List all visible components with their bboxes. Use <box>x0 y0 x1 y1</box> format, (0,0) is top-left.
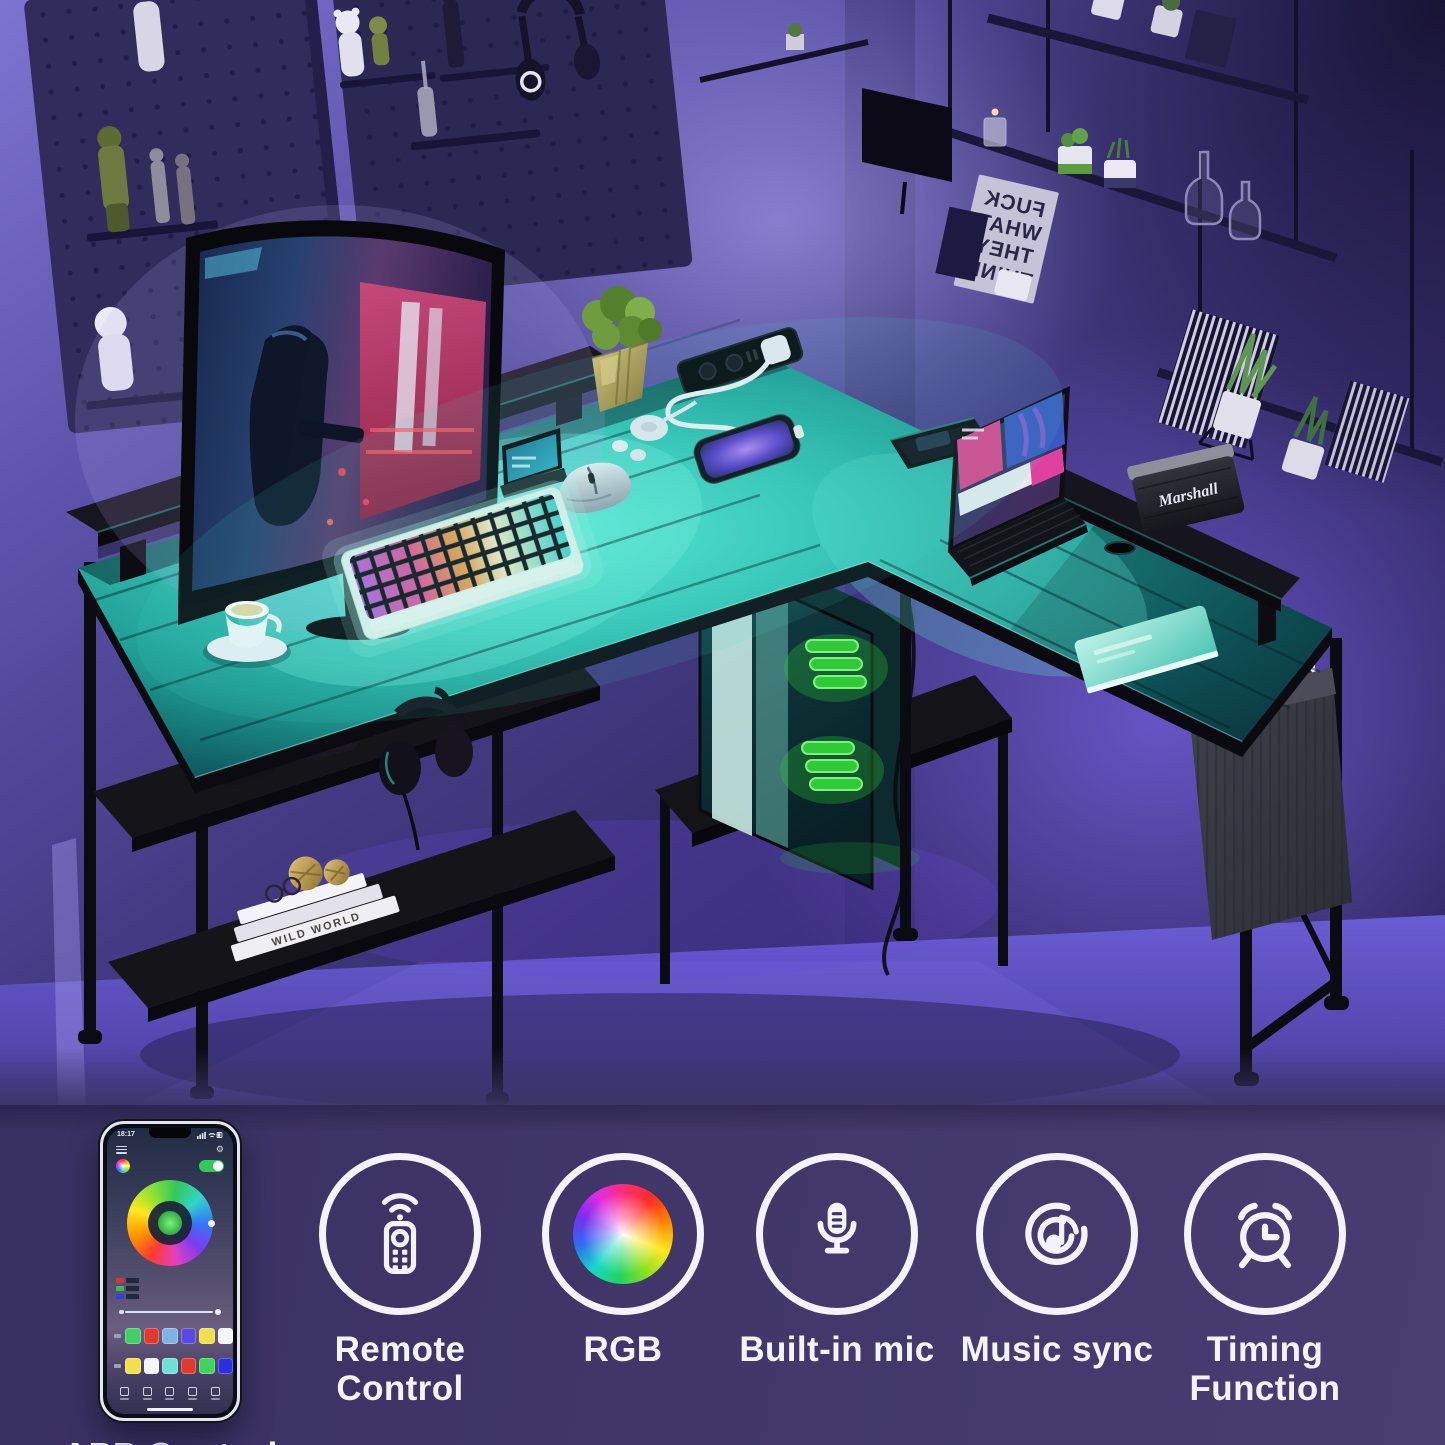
smartphone-app-icon: 18:17 ⚙ <box>100 1121 240 1421</box>
room-scene: FUCK WHAT THEY THINK <box>0 0 1445 1112</box>
color-swatch <box>125 1358 141 1374</box>
app-control-row <box>107 1159 233 1173</box>
feature-rgb: RGB <box>513 1153 733 1370</box>
feature-label: RGB <box>584 1331 663 1370</box>
alarm-clock-icon <box>1184 1153 1346 1315</box>
color-mode-icon <box>116 1159 130 1173</box>
feature-label: Music sync <box>961 1331 1154 1370</box>
status-icons <box>197 1131 223 1139</box>
swatch-row-2 <box>114 1358 233 1374</box>
feature-label: Remote Control <box>313 1331 488 1408</box>
grommet-hole <box>1105 542 1135 554</box>
rgb-value-chips <box>116 1278 139 1299</box>
color-swatch <box>125 1328 141 1344</box>
feature-timing-function: Timing Function <box>1135 1153 1395 1408</box>
feature-strip: 18:17 ⚙ <box>0 1105 1445 1445</box>
color-swatch <box>162 1358 178 1374</box>
color-swatch <box>218 1358 234 1374</box>
home-indicator <box>147 1408 193 1412</box>
microphone-icon <box>756 1153 918 1315</box>
color-swatch <box>181 1358 197 1374</box>
feature-music-sync: Music sync <box>947 1153 1167 1370</box>
product-image: FUCK WHAT THEY THINK <box>0 0 1445 1445</box>
color-swatch <box>199 1358 215 1374</box>
app-tab-bar <box>107 1387 233 1400</box>
phone-screen: 18:17 ⚙ <box>107 1128 233 1414</box>
app-control-feature: 18:17 ⚙ <box>55 1121 285 1445</box>
status-time: 18:17 <box>117 1131 135 1139</box>
power-toggle <box>199 1160 224 1172</box>
gear-icon: ⚙ <box>216 1145 224 1154</box>
feature-built-in-mic: Built-in mic <box>727 1153 947 1370</box>
feature-remote-control: Remote Control <box>290 1153 510 1408</box>
color-swatch <box>218 1328 234 1344</box>
feature-label: Timing Function <box>1135 1331 1395 1408</box>
phone-notch <box>149 1128 191 1138</box>
swatch-row-1 <box>114 1328 233 1344</box>
color-wheel <box>127 1180 213 1266</box>
remote-control-icon <box>319 1153 481 1315</box>
color-swatch <box>162 1328 178 1344</box>
color-swatch <box>144 1328 160 1344</box>
menu-icon <box>116 1146 127 1154</box>
music-sync-icon <box>976 1153 1138 1315</box>
color-swatch <box>144 1358 160 1374</box>
rgb-color-wheel-icon <box>542 1153 704 1315</box>
color-swatch <box>199 1328 215 1344</box>
feature-label: Built-in mic <box>739 1331 934 1370</box>
color-swatch <box>181 1328 197 1344</box>
brightness-slider <box>119 1308 221 1316</box>
feature-label-app-control: APP Control <box>62 1435 278 1445</box>
app-nav-bar: ⚙ <box>107 1145 233 1154</box>
